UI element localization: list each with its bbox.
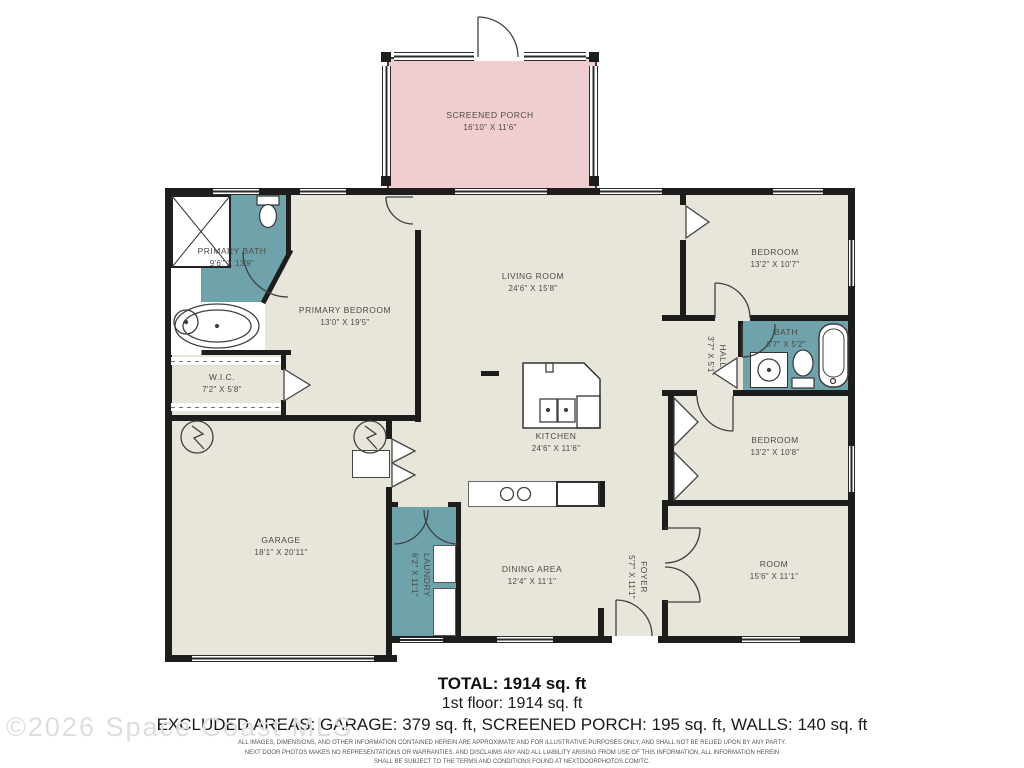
room-dims: 12'4" X 11'1" — [502, 576, 562, 588]
room-dims: 15'6" X 11'1" — [750, 571, 799, 583]
room-name: KITCHEN — [532, 430, 581, 443]
total-area: TOTAL: 1914 sq. ft — [0, 674, 1024, 694]
water-heater-icon-left — [181, 421, 213, 453]
label-primary-bath: PRIMARY BATH 9'6" X 13'9" — [198, 245, 267, 271]
bath-tub-icon — [819, 324, 848, 387]
room-name: W.I.C. — [202, 371, 242, 384]
garage-entry-doors-icon — [392, 439, 415, 487]
room-name: LIVING ROOM — [502, 270, 564, 283]
mls-watermark: ©2026 Space Coast MLS — [6, 712, 353, 743]
label-hall: HALL 3'7" X 5'1" — [703, 336, 729, 376]
room-dims: 5'7" X 11'1" — [624, 555, 636, 599]
room-dims: 6'2" X 11'1" — [407, 553, 419, 597]
label-living-room: LIVING ROOM 24'6" X 15'8" — [502, 270, 564, 296]
bath-sink-icon — [758, 359, 780, 381]
disclaimer-line-2: NEXT DOOR PHOTOS MAKES NO REPRESENTATION… — [0, 749, 1024, 759]
label-wic: W.I.C. 7'2" X 5'8" — [202, 371, 242, 397]
porch-door-icon — [478, 17, 518, 57]
label-kitchen: KITCHEN 24'6" X 11'6" — [532, 430, 581, 456]
room-dims: 13'0" X 19'5" — [299, 317, 391, 329]
room-name: GARAGE — [254, 534, 307, 547]
room-dims: 16'10" X 11'6" — [446, 122, 533, 134]
label-laundry: LAUNDRY 6'2" X 11'1" — [407, 553, 433, 597]
front-door-icon — [616, 600, 652, 636]
bedroom2-bifold-doors-icon — [674, 398, 698, 500]
room-name: LAUNDRY — [420, 553, 433, 597]
cooktop-icon — [501, 488, 531, 501]
label-bath: BATH 8'7" X 5'2" — [766, 326, 806, 352]
label-primary-bedroom: PRIMARY BEDROOM 13'0" X 19'5" — [299, 304, 391, 330]
room-name: SCREENED PORCH — [446, 109, 533, 122]
label-foyer: FOYER 5'7" X 11'1" — [624, 555, 650, 599]
label-dining-area: DINING AREA 12'4" X 11'1" — [502, 563, 562, 589]
label-bedroom-1: BEDROOM 13'2" X 10'7" — [750, 246, 799, 272]
bathtub-icon — [175, 304, 259, 348]
room-name: BEDROOM — [750, 246, 799, 259]
label-room: ROOM 15'6" X 11'1" — [750, 558, 799, 584]
room-dims: 24'6" X 15'8" — [502, 283, 564, 295]
bedroom1-door-icon — [715, 283, 750, 318]
laundry-doors-icon — [394, 510, 458, 544]
room-dims: 7'2" X 5'8" — [202, 384, 242, 396]
room-name: DINING AREA — [502, 563, 562, 576]
disclaimer: ALL IMAGES, DIMENSIONS, AND OTHER INFORM… — [0, 739, 1024, 768]
primary-bedroom-door-icon — [386, 197, 413, 224]
room-name: PRIMARY BATH — [198, 245, 267, 258]
room-dims: 3'7" X 5'1" — [703, 336, 715, 376]
bath-toilet-icon — [792, 350, 814, 388]
room-dims: 13'2" X 10'7" — [750, 259, 799, 271]
french-doors-icon — [665, 528, 700, 602]
wic-door-icon — [284, 369, 310, 401]
floor-plan: SCREENED PORCH 16'10" X 11'6" PRIMARY BA… — [0, 0, 1024, 768]
room-dims: 13'2" X 10'8" — [750, 447, 799, 459]
first-floor-area: 1st floor: 1914 sq. ft — [0, 695, 1024, 713]
label-screened-porch: SCREENED PORCH 16'10" X 11'6" — [446, 109, 533, 135]
disclaimer-line-3: SHALL BE SUBJECT TO THE TERMS AND CONDIT… — [0, 758, 1024, 768]
label-bedroom-2: BEDROOM 13'2" X 10'8" — [750, 434, 799, 460]
toilet-icon — [257, 196, 279, 228]
room-name: HALL — [716, 336, 729, 376]
room-name: ROOM — [750, 558, 799, 571]
bedroom1-closet-door-icon — [686, 206, 709, 238]
water-heater-icon-right — [354, 421, 386, 453]
room-name: BATH — [766, 326, 806, 339]
room-dims: 9'6" X 13'9" — [198, 258, 267, 270]
room-name: BEDROOM — [750, 434, 799, 447]
bedroom2-door-icon — [697, 396, 733, 431]
room-dims: 24'6" X 11'6" — [532, 443, 581, 455]
kitchen-island-icon — [523, 363, 600, 428]
room-dims: 8'7" X 5'2" — [766, 339, 806, 351]
label-garage: GARAGE 18'1" X 20'11" — [254, 534, 307, 560]
room-name: FOYER — [637, 555, 650, 599]
room-name: PRIMARY BEDROOM — [299, 304, 391, 317]
room-dims: 18'1" X 20'11" — [254, 547, 307, 559]
